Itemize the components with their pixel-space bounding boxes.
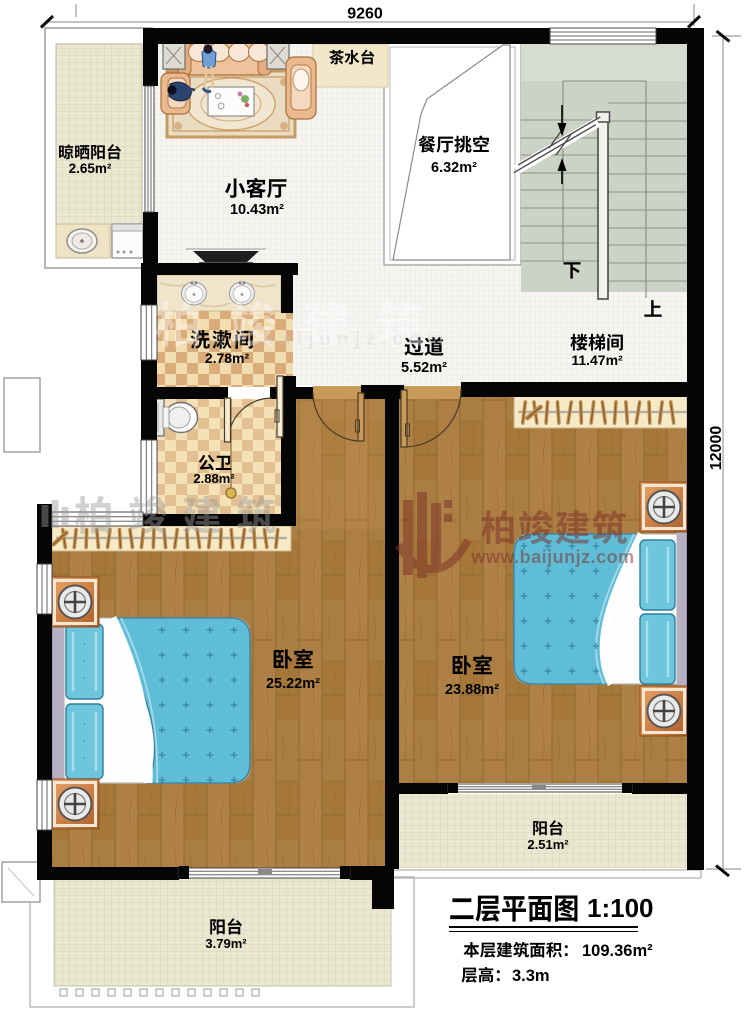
svg-text:12000: 12000 bbox=[708, 426, 725, 471]
svg-text:25.22m²: 25.22m² bbox=[266, 676, 320, 692]
svg-text:23.88m²: 23.88m² bbox=[445, 682, 499, 698]
svg-text:2.78m²: 2.78m² bbox=[205, 350, 250, 366]
svg-text:6.32m²: 6.32m² bbox=[431, 160, 477, 176]
svg-text:5.52m²: 5.52m² bbox=[401, 360, 447, 376]
svg-text:www.baijunjz.com: www.baijunjz.com bbox=[470, 547, 634, 567]
svg-text:11.47m²: 11.47m² bbox=[571, 352, 623, 368]
svg-text:ww.baijunjz.com: ww.baijunjz.com bbox=[209, 329, 449, 350]
svg-text:3.79m²: 3.79m² bbox=[205, 936, 247, 951]
svg-text:1:100: 1:100 bbox=[587, 893, 654, 923]
svg-text:10.43m²: 10.43m² bbox=[230, 202, 284, 218]
svg-text:2.88m²: 2.88m² bbox=[193, 471, 235, 486]
svg-text:9260: 9260 bbox=[347, 6, 383, 23]
svg-text:109.36m²: 109.36m² bbox=[582, 942, 653, 960]
svg-text:3.3m: 3.3m bbox=[512, 967, 550, 985]
svg-text:2.51m²: 2.51m² bbox=[527, 837, 569, 852]
svg-text:2.65m²: 2.65m² bbox=[69, 161, 112, 176]
